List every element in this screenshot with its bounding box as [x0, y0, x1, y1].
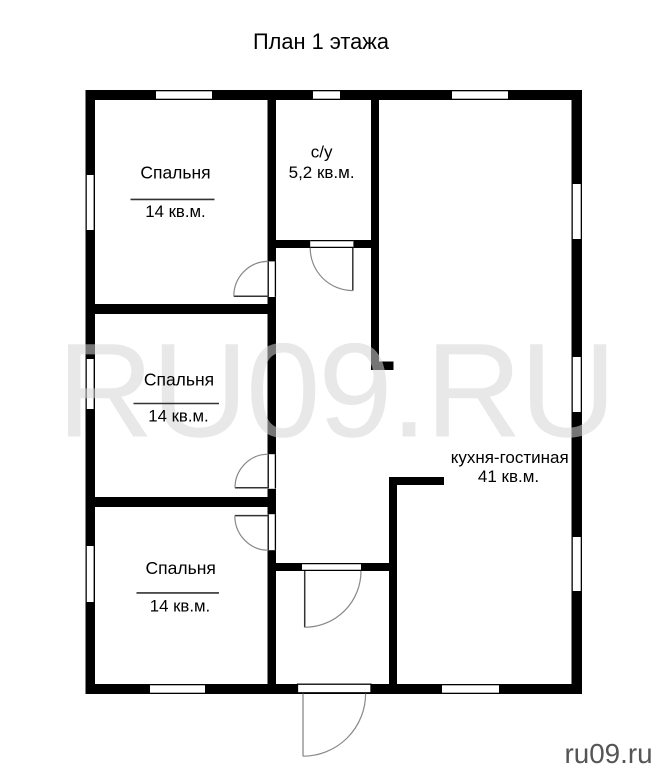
svg-text:41 кв.м.: 41 кв.м. — [478, 467, 539, 486]
svg-text:План 1 этажа: План 1 этажа — [253, 29, 390, 54]
svg-text:кухня-гостиная: кухня-гостиная — [451, 448, 569, 467]
svg-text:Спальня: Спальня — [146, 558, 216, 578]
svg-text:Спальня: Спальня — [144, 370, 214, 390]
svg-text:RU09.RU: RU09.RU — [57, 317, 614, 466]
svg-text:14 кв.м.: 14 кв.м. — [148, 407, 208, 426]
svg-text:Спальня: Спальня — [140, 163, 210, 183]
svg-text:ru09.ru: ru09.ru — [565, 738, 653, 769]
svg-text:5,2 кв.м.: 5,2 кв.м. — [289, 163, 355, 182]
svg-text:с/у: с/у — [311, 142, 333, 161]
svg-text:14 кв.м.: 14 кв.м. — [150, 597, 210, 616]
svg-text:14 кв.м.: 14 кв.м. — [145, 202, 205, 221]
